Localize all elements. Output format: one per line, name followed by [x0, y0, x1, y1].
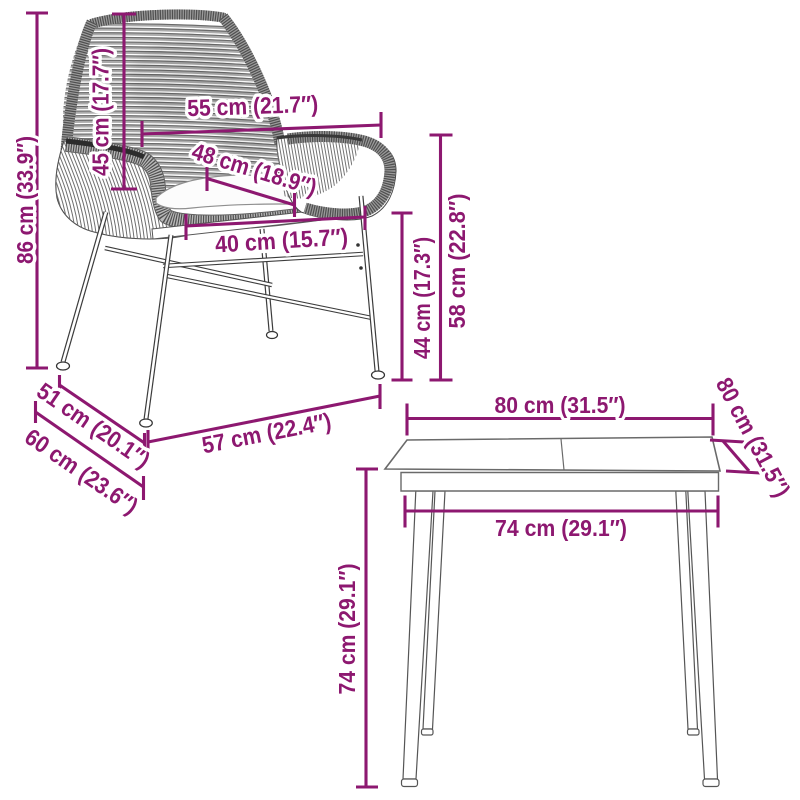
svg-text:45 cm (17.7″): 45 cm (17.7″): [88, 48, 114, 176]
svg-text:58 cm (22.8″): 58 cm (22.8″): [444, 194, 470, 329]
svg-text:86 cm (33.9″): 86 cm (33.9″): [12, 136, 38, 264]
svg-text:80 cm (31.5″): 80 cm (31.5″): [495, 392, 626, 418]
svg-text:74 cm (29.1″): 74 cm (29.1″): [334, 564, 360, 695]
svg-text:44 cm (17.3″): 44 cm (17.3″): [409, 237, 435, 359]
svg-text:55 cm (21.7″): 55 cm (21.7″): [187, 91, 319, 122]
svg-text:74 cm (29.1″): 74 cm (29.1″): [495, 515, 627, 541]
